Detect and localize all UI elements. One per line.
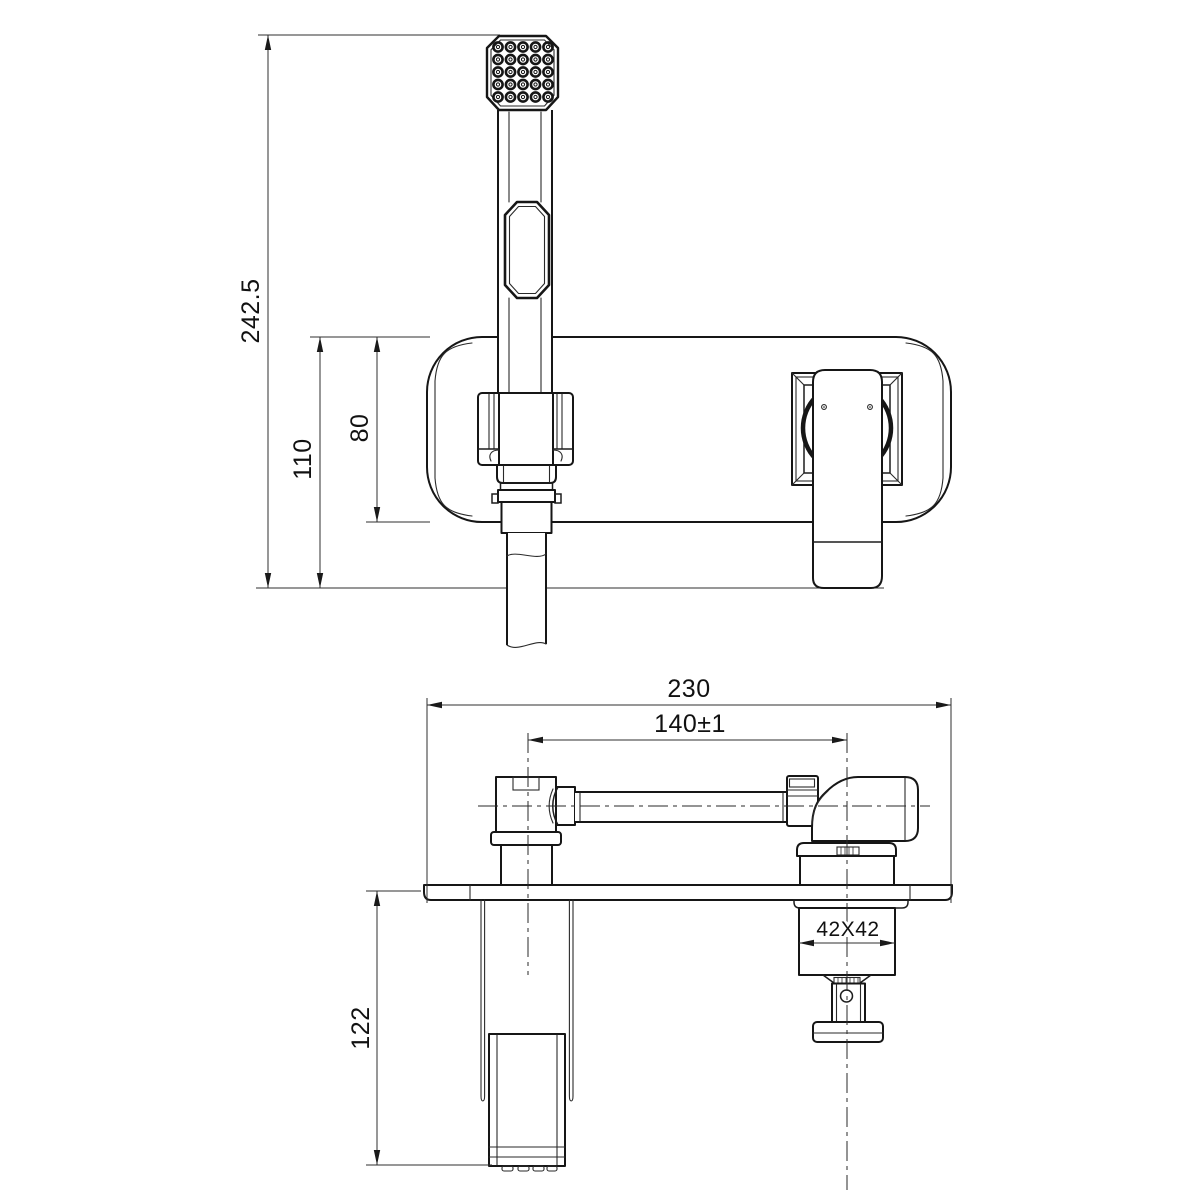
holder-side-fitting: [491, 777, 575, 886]
hose-fitting-top: [498, 490, 555, 502]
plate-bar: [424, 885, 952, 900]
spout-body: [812, 777, 918, 841]
hose-mask: [507, 533, 546, 647]
arrowhead: [528, 737, 543, 743]
hose-nut: [497, 465, 556, 483]
inwall-spout: [481, 900, 573, 1171]
valve-taper: [860, 975, 871, 983]
shower-holder-bracket: [478, 393, 573, 465]
spout-block: [489, 1034, 565, 1166]
dim-text-holder-offset: 110: [289, 438, 317, 479]
holder-washer: [491, 832, 561, 845]
side-view-dimensions: 230 140±1 122 42X42: [347, 675, 951, 1165]
wall-flange: [813, 1022, 883, 1042]
dim-text-plate-width: 230: [667, 675, 710, 703]
dim-text-center-spacing: 140±1: [654, 710, 726, 738]
arrowhead: [265, 573, 271, 588]
arrowhead: [374, 507, 380, 522]
wall-plate-edge: [424, 885, 952, 908]
lever-handle: [813, 370, 882, 588]
arrowhead: [374, 891, 380, 906]
dim-text-total-height: 242.5: [237, 278, 265, 343]
hand-shower: [487, 36, 558, 393]
arrowhead: [832, 737, 847, 743]
shaft-through-mask: [500, 394, 552, 464]
inwall-channel: [569, 900, 573, 1101]
inwall-channel: [481, 900, 485, 1101]
valve-collar: [794, 900, 908, 908]
arrowhead: [374, 1150, 380, 1165]
grip-button: [505, 202, 549, 298]
dim-text-valve-section: 42X42: [816, 918, 879, 941]
holder-body: [496, 777, 556, 832]
holder-stem: [501, 845, 552, 886]
valve-taper: [823, 975, 834, 983]
arrowhead: [427, 702, 442, 708]
drawing-canvas: 242.5 110 80: [0, 0, 1200, 1200]
arrowhead: [265, 35, 271, 50]
dim-text-wall-depth: 122: [347, 1006, 375, 1049]
arrowhead: [936, 702, 951, 708]
arrowhead: [374, 337, 380, 352]
arrowhead: [317, 337, 323, 352]
arrowhead: [317, 573, 323, 588]
dim-text-plate-height: 80: [346, 414, 374, 443]
side-view: [424, 776, 952, 1171]
handle-pin-dot: [823, 406, 825, 408]
spout-side-assembly: [787, 776, 918, 885]
hose-connection: [492, 465, 561, 647]
hose-fitting-body: [502, 502, 552, 533]
faucet-technical-drawing: 242.5 110 80: [0, 0, 1200, 1200]
front-view: [427, 36, 951, 647]
pipe-mask: [575, 793, 788, 821]
lever-handle-assembly: [792, 370, 902, 588]
handle-pin-dot: [869, 406, 871, 408]
connecting-pipe: [575, 792, 788, 822]
